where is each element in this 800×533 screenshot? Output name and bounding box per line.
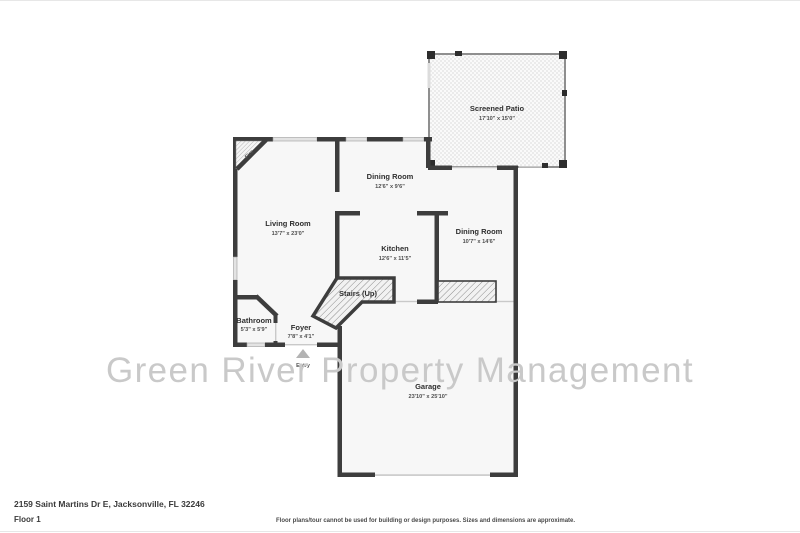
- window: [346, 138, 367, 142]
- entry-label: Entry: [296, 363, 310, 369]
- entry-arrow-icon: [296, 349, 310, 358]
- window: [247, 343, 265, 347]
- room-dims: 7'8" x 4'1": [288, 334, 315, 340]
- room-dims: 13'7" x 23'0": [272, 231, 305, 237]
- room-name: Foyer: [291, 323, 312, 332]
- hatched-wall-block: [438, 281, 496, 302]
- patio-post: [427, 51, 435, 59]
- room-name: Garage: [415, 382, 441, 391]
- room-name: Bathroom: [236, 316, 272, 325]
- door-opening: [394, 301, 417, 302]
- room-name: Dining Room: [367, 172, 414, 181]
- room-name: Dining Room: [456, 227, 503, 236]
- room-dims: 12'6" x 9'6": [375, 184, 405, 190]
- patio-post: [562, 90, 567, 96]
- door-opening: [496, 301, 514, 302]
- patio-window: [428, 63, 431, 88]
- top-border: [0, 0, 800, 1]
- floor-label: Floor 1: [14, 515, 41, 524]
- property-address: 2159 Saint Martins Dr E, Jacksonville, F…: [14, 499, 205, 509]
- window: [273, 138, 317, 142]
- stairs-label: Stairs (Up): [339, 289, 377, 298]
- room-dims: 5'3" x 5'9": [241, 327, 268, 333]
- garage-door: [375, 474, 490, 476]
- room-dims: 23'10" x 25'10": [408, 394, 447, 400]
- patio-post: [559, 51, 567, 59]
- room-dims: 10'7" x 14'6": [463, 239, 496, 245]
- door-opening: [275, 323, 276, 342]
- window: [234, 257, 238, 280]
- floor-plan-page: Fire Stairs (Up) Entry Screened Patio 17…: [0, 0, 800, 533]
- floor-plan-drawing: Fire Stairs (Up) Entry Screened Patio 17…: [0, 0, 800, 533]
- patio-post: [559, 160, 567, 168]
- room-label-foyer: Foyer 7'8" x 4'1": [288, 323, 315, 340]
- room-dims: 12'6" x 11'5": [379, 256, 412, 262]
- room-dims: 17'10" x 15'0": [479, 116, 515, 122]
- window: [403, 138, 424, 142]
- room-name: Kitchen: [381, 244, 409, 253]
- entry-door-opening: [285, 344, 317, 345]
- disclaimer-text: Floor plans/tour cannot be used for buil…: [276, 518, 575, 524]
- patio-post: [542, 163, 548, 168]
- house-footprint: [235, 141, 516, 475]
- patio-post: [455, 51, 462, 56]
- room-name: Living Room: [265, 219, 311, 228]
- bottom-border: [0, 531, 800, 532]
- sliding-door: [452, 167, 497, 168]
- patio-screen-door: [519, 166, 542, 168]
- room-name: Screened Patio: [470, 104, 525, 113]
- entry-marker: Entry: [296, 349, 310, 369]
- room-label-bathroom: Bathroom 5'3" x 5'9": [236, 316, 272, 333]
